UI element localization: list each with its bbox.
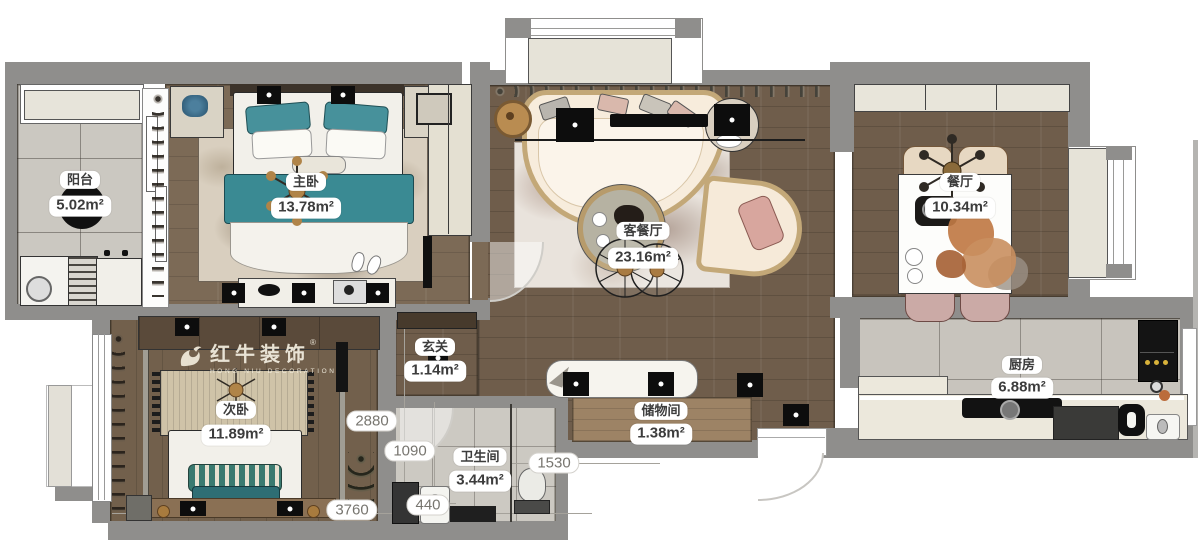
label-balcony-area: 5.02m² (49, 196, 111, 217)
watermark-reg: ® (310, 338, 316, 347)
balcony-tap-dot-2 (122, 250, 128, 256)
stove-knob-1 (1145, 360, 1150, 365)
shower-partition (510, 404, 512, 522)
tatami-fringe-left (152, 372, 160, 432)
kitchen-oven-line (1140, 352, 1174, 353)
spotlight-bedroom2-4 (277, 501, 303, 516)
label-bathroom-area: 3.44m² (449, 471, 511, 492)
main-door-sill (757, 428, 827, 456)
label-kitchen-area: 6.88m² (991, 378, 1053, 399)
bedroom2-window-line-1 (98, 334, 99, 500)
label-bedroom2-name: 次卧 (216, 401, 256, 419)
wall-dining-kitchen (830, 297, 1195, 318)
balcony-window-glass (24, 90, 140, 120)
label-master-area: 13.78m² (271, 198, 341, 219)
dining-cabinet-div-1 (925, 84, 926, 110)
dresser-monitor-lens (344, 285, 354, 295)
master-wardrobe-divider (448, 84, 449, 234)
wall-kitchen-bottom (845, 440, 1195, 458)
label-storage-area: 1.38m² (630, 424, 692, 445)
spotlight-hall-1 (563, 372, 589, 396)
stove-knob-3 (1163, 360, 1168, 365)
bedroom2-window (92, 334, 112, 502)
dim-2880: 2880 (346, 411, 397, 432)
label-balcony-name: 阳台 (60, 171, 100, 189)
wall-bathroom-top (378, 396, 568, 408)
dining-bay-sill (1068, 148, 1108, 278)
wall-bottom (108, 521, 568, 540)
kitchen-faucet (1157, 419, 1168, 434)
wall-master-living-upper (470, 62, 490, 242)
bench-knob-1 (157, 505, 170, 518)
living-bay-block-left (505, 18, 531, 38)
kitchen-small-dial (1150, 380, 1163, 393)
headboard-panel-left (257, 86, 281, 104)
nightstand-left-decor (182, 95, 208, 117)
living-bay-line-1 (505, 28, 701, 29)
coffee-cup-1 (592, 212, 607, 227)
living-fan-left (494, 100, 532, 138)
bench-knob-2 (307, 505, 320, 518)
kitchen-oven-unit (1138, 320, 1178, 382)
dim-3760: 3760 (326, 500, 377, 521)
dining-bay-block-top (1106, 146, 1132, 160)
main-door-swing-arc (758, 453, 824, 501)
living-bay-sill (528, 38, 672, 84)
label-kitchen-name: 厨房 (1002, 356, 1042, 374)
bathroom-vanity (450, 506, 496, 522)
washing-machine-drum (26, 276, 52, 302)
dim-440: 440 (406, 495, 449, 516)
kitchen-stool-slot (1127, 412, 1136, 428)
sofa-side-table-left (556, 108, 594, 142)
label-storage-name: 储物间 (634, 402, 687, 420)
bedroom2-curtain (112, 332, 125, 520)
master-tv (423, 236, 432, 288)
wall-door-right (822, 428, 862, 458)
drying-rack (68, 256, 98, 306)
living-bay-block-right (675, 18, 701, 38)
master-curtain (152, 92, 164, 297)
headboard-panel-right (331, 86, 355, 104)
floor-plan: 红牛装饰 ® HONG NIU DECORATION 阳台 5.02m² 主卧 … (0, 0, 1200, 540)
balcony-tap-dot-1 (104, 250, 110, 256)
dining-bay-line-1 (1113, 146, 1114, 278)
stove-knob-2 (1154, 360, 1159, 365)
main-door-sill-line (757, 437, 825, 438)
label-dining-name: 餐厅 (940, 173, 980, 191)
dining-bay-line-2 (1123, 146, 1124, 278)
wall-bay-block-top (92, 318, 110, 334)
label-entry-area: 1.14m² (404, 361, 466, 382)
spotlight-hall-2 (648, 372, 674, 396)
wall-top-left (5, 62, 462, 84)
dining-flower-3 (936, 250, 966, 278)
sofa-console-bar (610, 114, 708, 127)
label-master-name: 主卧 (286, 173, 326, 191)
label-living-area: 23.16m² (608, 248, 678, 269)
kitchen-orange-dot (1159, 390, 1170, 401)
label-bedroom2-area: 11.89m² (201, 425, 270, 446)
spotlight-bedroom2-3 (180, 501, 206, 516)
dim-1090: 1090 (384, 441, 435, 462)
living-bay-line-2 (505, 35, 701, 36)
watermark: 红牛装饰 ® HONG NIU DECORATION (176, 338, 346, 375)
dining-plate-2 (907, 268, 923, 284)
spotlight-bedroom2-2 (262, 318, 286, 336)
master-duvet (230, 222, 408, 274)
dining-cabinet (854, 84, 1070, 112)
bedroom2-window-line-2 (104, 334, 105, 500)
side-table-right-dish (716, 134, 742, 148)
label-entry-name: 玄关 (415, 338, 455, 356)
wall-kitchen-left (840, 318, 860, 388)
watermark-brand-en: HONG NIU DECORATION (210, 368, 337, 375)
toilet-tank (514, 500, 550, 514)
watermark-brand: 红牛装饰 (210, 338, 310, 367)
wall-bay-block-bottom2 (92, 499, 110, 523)
nightstand-right-frame (416, 93, 452, 125)
dresser-tray (258, 284, 280, 296)
label-bathroom-name: 卫生间 (453, 448, 506, 466)
kitchen-appliance-block (1053, 406, 1119, 440)
entry-cabinet (397, 312, 477, 329)
spotlight-hall-4 (783, 404, 809, 426)
wall-dining-top (852, 62, 1090, 84)
bedroom2-cabinet (126, 495, 152, 521)
wall-left (5, 62, 17, 320)
wall-living-dining-upper (830, 62, 854, 152)
spotlight-bedroom2-1 (175, 318, 199, 336)
living-fan-left-hub (506, 112, 514, 120)
dining-plate-1 (905, 248, 923, 266)
dim-1530: 1530 (528, 453, 579, 474)
label-living-name: 客餐厅 (616, 222, 669, 240)
balcony-cabinet (96, 258, 142, 306)
spotlight-master-2 (292, 283, 315, 303)
master-door-opening (472, 242, 488, 300)
spotlight-master-1 (222, 283, 245, 303)
spotlight-master-3 (366, 283, 389, 303)
left-bay-slab (48, 385, 72, 487)
spotlight-hall-3 (737, 373, 763, 397)
side-table-right-top (714, 104, 750, 136)
dining-cabinet-div-2 (996, 84, 997, 110)
label-dining-area: 10.34m² (925, 198, 995, 219)
hongniu-logo-icon (176, 343, 204, 371)
kitchen-pot (1000, 400, 1020, 420)
wall-dining-right-upper (1068, 62, 1090, 148)
dining-bay-block-bottom (1106, 264, 1132, 278)
